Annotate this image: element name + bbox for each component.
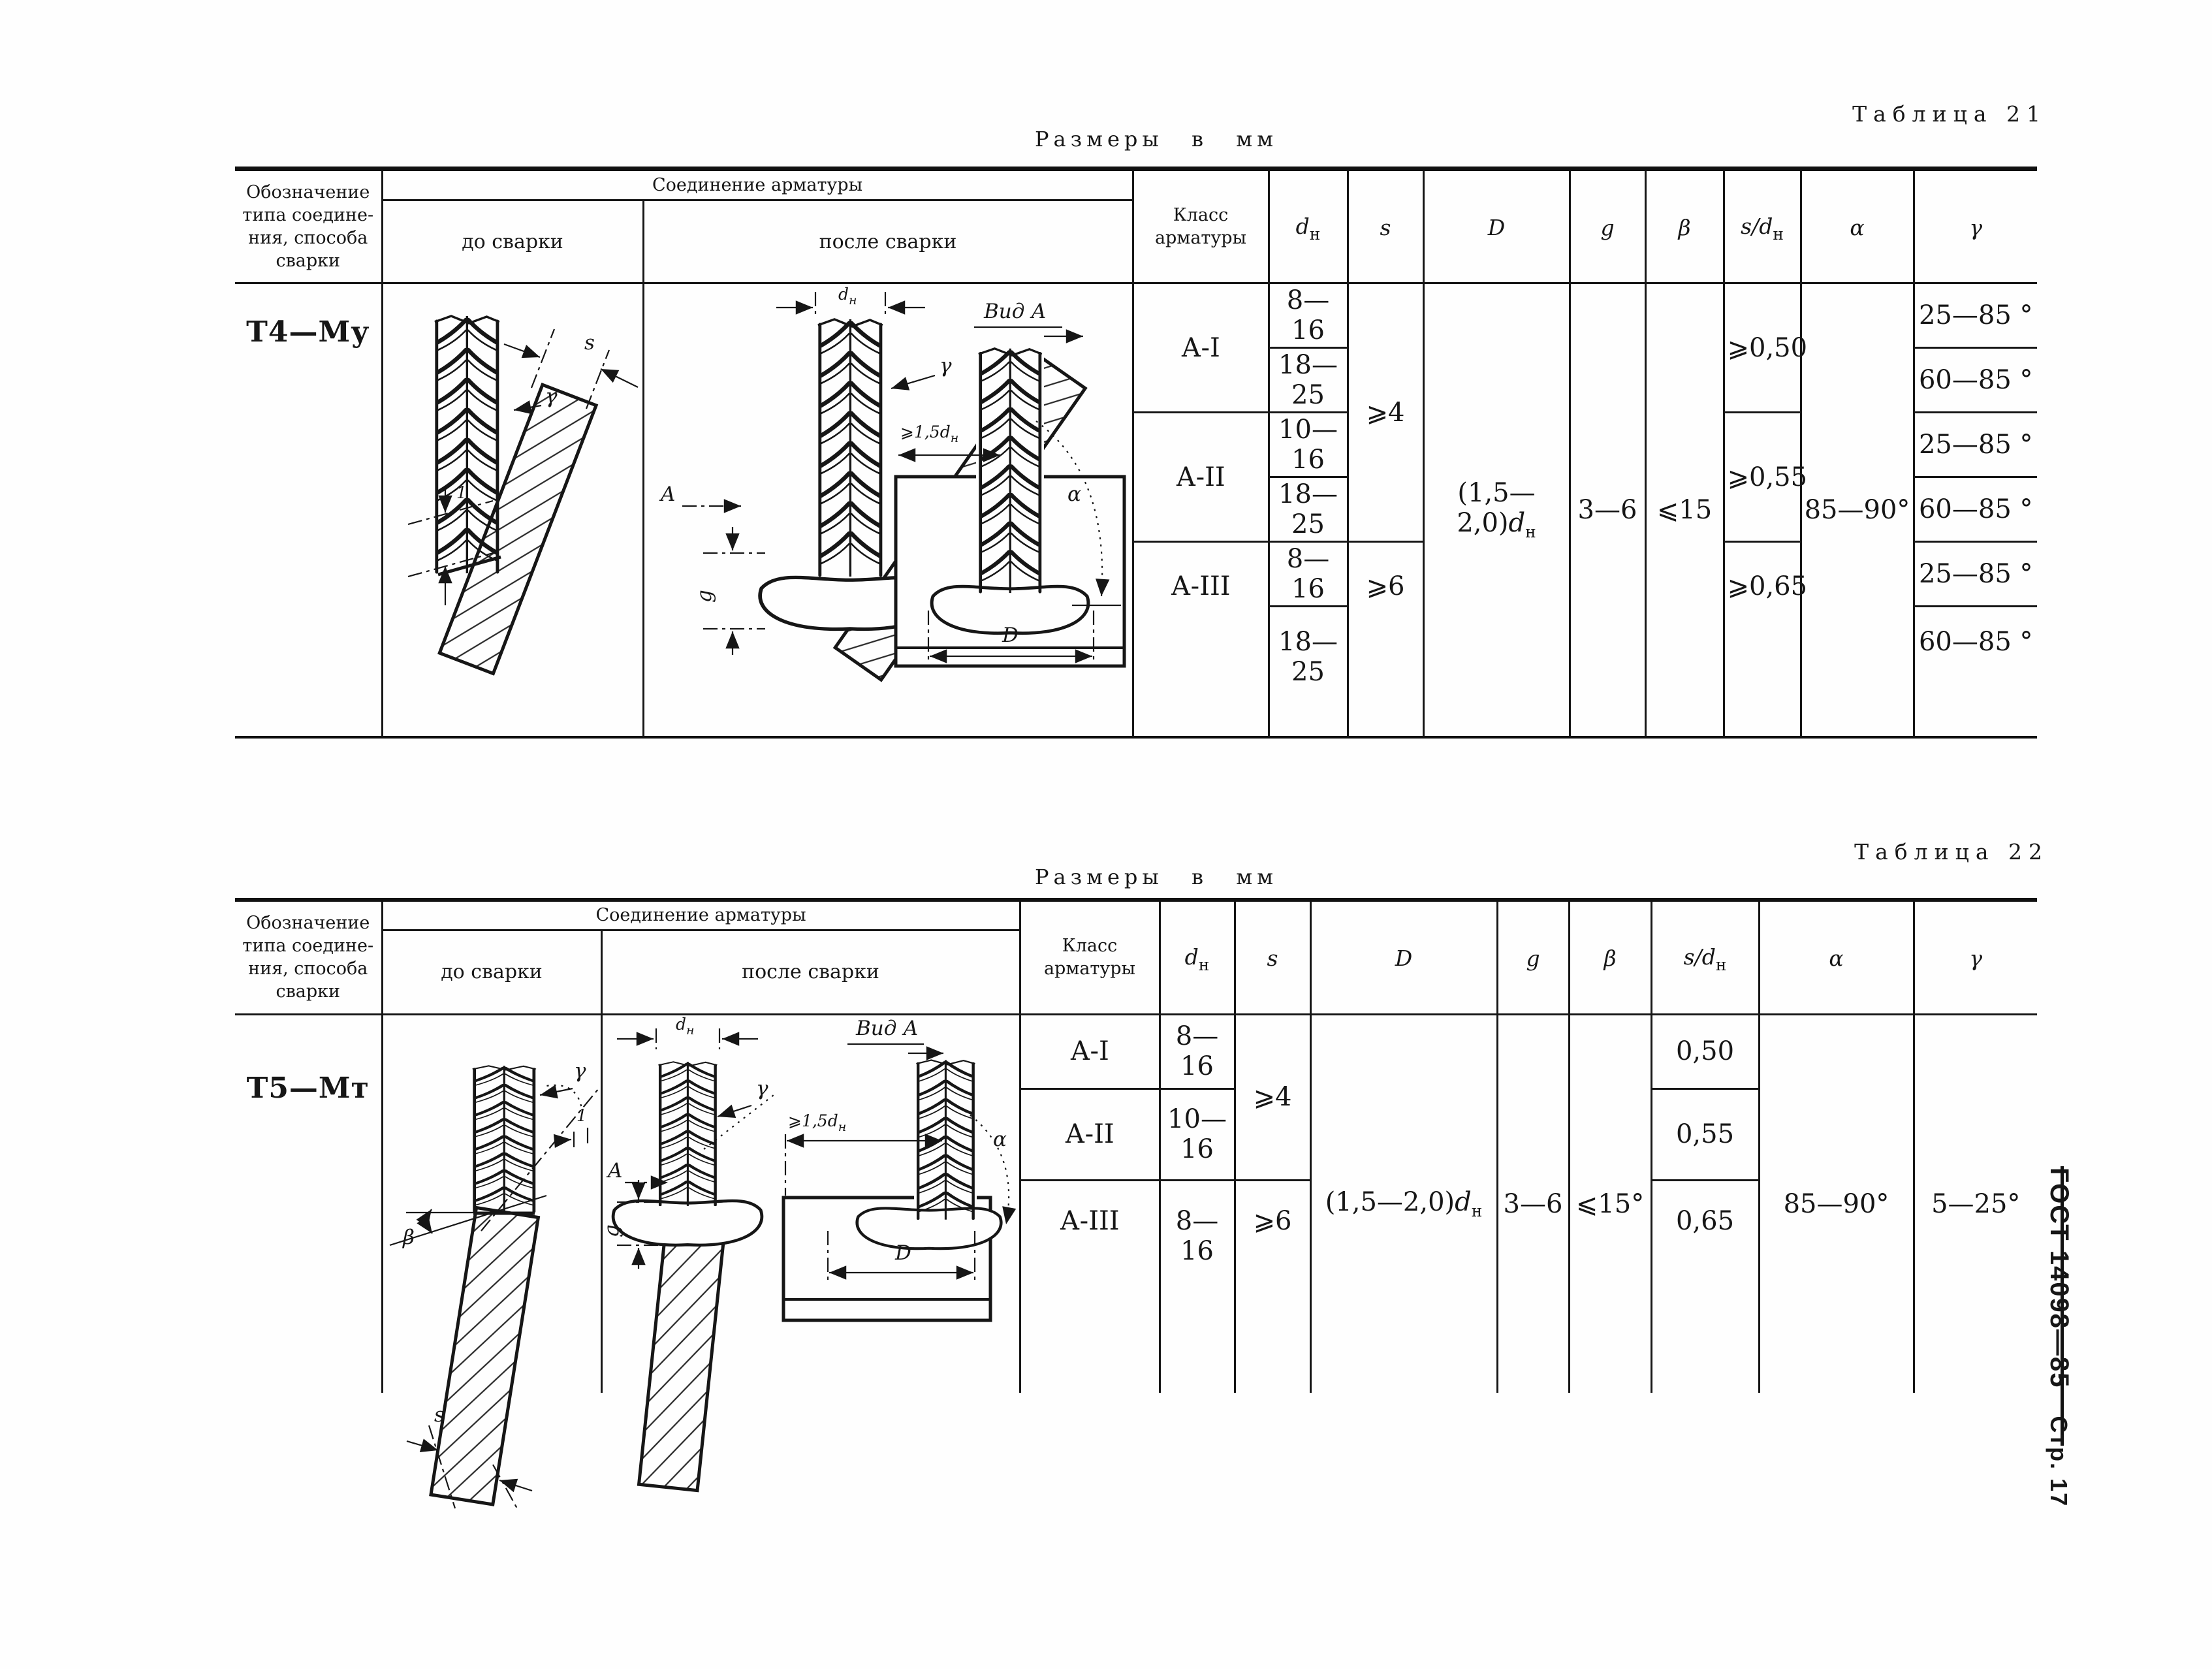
dimension-gamma: γ [514,385,558,410]
t22-class-AI: А-I [1020,1014,1160,1089]
dimension-dn: dн [617,1015,758,1049]
t21-header-sdn: s/dн [1724,169,1801,283]
t21-header-s: s [1348,169,1423,283]
table-22: Обозначение типа соедине- ния, способа с… [235,898,2037,1393]
t22-s-0: ⩾4 [1235,1014,1310,1180]
t21-header-designation: Обозначение типа соедине- ния, способа с… [235,169,382,283]
t21-g-value: 3—6 [1570,283,1645,737]
dn-subscript: н [1310,225,1321,244]
t22-beta-value: ⩽15° [1569,1014,1651,1393]
rebar [817,319,882,577]
one-label: 1 [456,483,467,502]
t22-gamma-value: 5—25° [1914,1014,2037,1393]
t22-dn-1: 10—16 [1160,1089,1235,1180]
t22-class-AIII: А-III [1020,1180,1160,1393]
t22-header-sdn: s/dн [1651,900,1759,1014]
t22-alpha-value: 85—90° [1759,1014,1914,1393]
t21-sdn-2: ⩾0,65 [1724,542,1801,737]
t21-gamma-4: 25—85 ° [1914,542,2037,607]
t21-header-dn: dн [1269,169,1348,283]
t22-header-s: s [1235,900,1310,1014]
t22-header-joint: Соединение арматуры [382,900,1020,930]
t21-sdn-1: ⩾0,55 [1724,413,1801,542]
a-view-label: A [606,1159,622,1183]
one-label: 1 [577,1106,587,1125]
dimension-dn: dн [776,285,925,318]
table-row: Обозначение типа соедине- ния, способа с… [235,169,2037,200]
table-row: Т5—Мт [235,1014,2037,1089]
t21-class-AI: А-I [1133,283,1269,413]
t21-header-joint: Соединение арматуры [382,169,1133,200]
t21-header-class: Класс арматуры [1133,169,1269,283]
rebar-view-a [857,1060,1001,1248]
t22-sdn-0: 0,50 [1651,1014,1759,1089]
view-a-title: Вид А [847,1017,943,1053]
s-label: s [434,1403,445,1427]
table-21: Обозначение типа соедине- ния, способа с… [235,167,2037,739]
dn-symbol: d [1296,214,1310,239]
t22-header-after: после сварки [601,930,1020,1014]
dn-label: dн [838,285,857,308]
view-a-title: Вид А [974,300,1083,336]
t21-header-before: до сварки [382,200,643,283]
t21-dn-2: 10—16 [1269,413,1348,477]
t21-header-gamma: γ [1914,169,2037,283]
t21-before-weld-drawing: γ s 1 [383,284,642,672]
table21-units-label: Размеры в мм [1035,127,1278,151]
t22-before-weld-drawing: γ 1 β [383,1015,600,1508]
t21-header-D: D [1423,169,1570,283]
t21-dn-5: 18—25 [1269,607,1348,737]
t21-gamma-1: 60—85 ° [1914,348,2037,413]
D-label: D [894,1241,911,1265]
t22-dn-0: 8—16 [1160,1014,1235,1089]
t22-s-1: ⩾6 [1235,1180,1310,1393]
gamma-label: γ [574,1059,586,1083]
min15dn-label: ⩾1,5dн [900,422,958,445]
dn-label: dн [676,1015,695,1038]
t21-D-value: (1,5—2,0)dн [1423,283,1570,737]
alpha-label: α [993,1128,1007,1151]
side-note: ГОСТ 14098—85Стр. 17 [2044,1168,2074,1507]
alpha-label: α [1067,483,1081,506]
t21-beta-value: ⩽15 [1645,283,1724,737]
gamma-label: γ [756,1077,768,1100]
t21-s-1: ⩾6 [1348,542,1423,737]
t22-designation: Т5—Мт [235,1014,382,1393]
a-view-label: A [659,483,675,506]
t21-dn-1: 18—25 [1269,348,1348,413]
vid-a-label: Вид А [983,300,1047,323]
t21-designation: Т4—Му [235,283,382,737]
t22-D-value: (1,5—2,0)dн [1310,1014,1497,1393]
t21-before-weld-drawing-cell: γ s 1 [382,283,643,737]
table-row: Обозначение типа соедине- ния, способа с… [235,900,2037,930]
t21-after-weld-drawing-cell: dн γ A g [643,283,1133,737]
dimension-gamma: γ [891,354,952,389]
gamma-label: γ [940,354,952,377]
rebar [472,1066,535,1213]
t21-gamma-5: 60—85 ° [1914,607,2037,737]
t21-gamma-0: 25—85 ° [1914,283,2037,348]
t21-dn-4: 8—16 [1269,542,1348,607]
g-label: g [600,1224,624,1237]
t21-alpha-value: 85—90° [1801,283,1914,737]
dimension-g: g [693,527,765,655]
t22-dn-2: 8—16 [1160,1180,1235,1393]
t21-header-beta: β [1645,169,1724,283]
dimension-one: 1 [557,1106,588,1147]
D-label: D [1002,624,1019,647]
t22-after-weld-drawing: dн γ A [603,1015,1018,1505]
t21-header-after: после сварки [643,200,1133,283]
t22-before-weld-drawing-cell: γ 1 β [382,1014,601,1393]
table22-units-label: Размеры в мм [1035,865,1278,889]
t22-header-before: до сварки [382,930,601,1014]
t22-g-value: 3—6 [1497,1014,1569,1393]
g-label: g [693,590,716,603]
dimension-beta: β [402,1209,432,1249]
t22-sdn-1: 0,55 [1651,1089,1759,1180]
plate [439,385,596,673]
t22-header-designation: Обозначение типа соедине- ния, способа с… [235,900,382,1014]
t21-sdn-0: ⩾0,50 [1724,283,1801,413]
t22-header-gamma: γ [1914,900,2037,1014]
dimension-gamma: γ [540,1059,586,1113]
s-label: s [584,331,595,355]
t21-gamma-3: 60—85 ° [1914,477,2037,542]
weld-bead [613,1201,762,1245]
table21-caption: Таблица 21 [1852,101,2047,127]
t21-gamma-2: 25—85 ° [1914,413,2037,477]
t21-dn-3: 18—25 [1269,477,1348,542]
page-number-label: Стр. 17 [2046,1416,2072,1507]
gost-number-label: ГОСТ 14098—85 [2045,1168,2074,1388]
t22-class-AII: А-II [1020,1089,1160,1180]
min15dn-label: ⩾1,5dн [788,1111,846,1134]
t21-dn-0: 8—16 [1269,283,1348,348]
t22-header-class: Класс арматуры [1020,900,1160,1014]
t22-sdn-2: 0,65 [1651,1180,1759,1393]
beta-label: β [402,1226,415,1249]
table22-caption: Таблица 22 [1854,839,2049,865]
t21-header-alpha: α [1801,169,1914,283]
table-row: Т4—Му γ [235,283,2037,348]
t22-header-g: g [1497,900,1569,1014]
vid-a-label: Вид А [855,1017,919,1040]
t21-header-g: g [1570,169,1645,283]
t22-header-beta: β [1569,900,1651,1014]
scanned-gost-page: Таблица 21 Размеры в мм Таблица 22 Разме… [0,0,2212,1669]
plate [639,1237,723,1490]
plate [430,1207,537,1504]
t21-after-weld-drawing: dн γ A g [644,284,1131,672]
view-arrow-A: A [606,1159,668,1183]
t21-class-AIII: А-III [1133,542,1269,737]
rebar [658,1062,717,1206]
view-arrow-A: A [659,483,741,506]
t21-class-AII: А-II [1133,413,1269,542]
t22-header-dn: dн [1160,900,1235,1014]
gamma-label: γ [545,385,558,408]
t22-after-weld-drawing-cell: dн γ A [601,1014,1020,1393]
t22-header-alpha: α [1759,900,1914,1014]
t21-s-0: ⩾4 [1348,283,1423,542]
t22-header-D: D [1310,900,1497,1014]
